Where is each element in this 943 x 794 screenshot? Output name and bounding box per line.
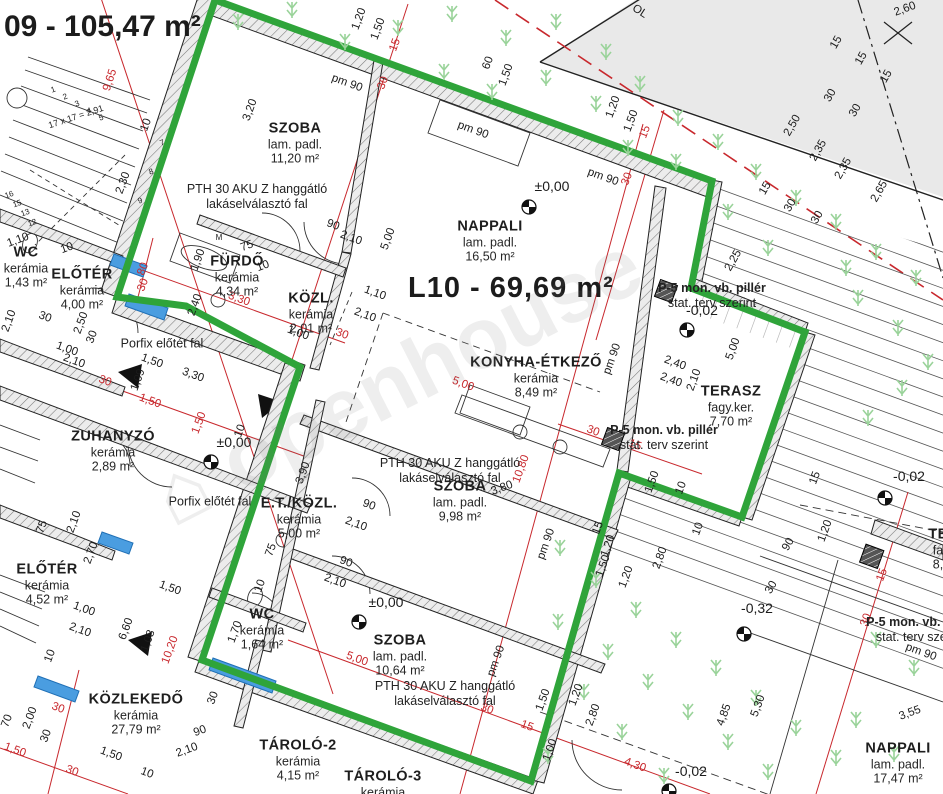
dimension-label: 15	[807, 470, 823, 486]
dimension-label: 2,80	[651, 545, 670, 570]
room-label-terasz-2: TEfa8,	[928, 526, 943, 571]
room-name: KONYHA-ÉTKEZŐ	[470, 354, 602, 371]
dimension-label: 2,10	[352, 306, 377, 325]
dimension-label: 30	[205, 690, 221, 706]
dimension-label: 30	[763, 579, 780, 596]
dimension-label: 1	[50, 84, 58, 94]
grass-icon	[683, 704, 693, 720]
dimension-label: 1,50	[98, 745, 123, 764]
room-label-nappali: NAPPALIlam. padl.16,50 m²	[457, 218, 522, 263]
dimension-label: 1,50	[622, 108, 641, 133]
dimension-label: pm 90	[330, 72, 364, 94]
room-label-kozlekedo: KÖZLEKEDŐkerámia27,79 m²	[89, 691, 184, 736]
grass-icon	[671, 632, 681, 648]
outside-plot-area	[540, 0, 943, 197]
room-name: TÁROLÓ-3	[344, 768, 421, 785]
room-floor-type: kerámia	[51, 283, 112, 297]
grass-icon	[617, 724, 627, 740]
grass-icon	[631, 602, 641, 618]
grass-icon	[643, 674, 653, 690]
room-label-nappali-2: NAPPALIlam. padl.17,47 m²	[865, 740, 930, 785]
dimension-label: 3	[74, 98, 82, 108]
level-marker-icon	[662, 784, 676, 794]
dimension-label: 2,00	[21, 705, 40, 730]
level-value: -0,02	[893, 468, 925, 484]
dimension-label: 2,10	[174, 741, 199, 760]
room-floor-type: kerámia	[259, 754, 336, 768]
room-label-tarolo-2: TÁROLÓ-2kerámia4,15 m²	[259, 737, 336, 782]
room-floor-type: kerámia	[261, 512, 338, 526]
note-pth-3: PTH 30 AKU Z hanggátlólakáselválasztó fa…	[375, 679, 515, 709]
dimension-label: 1,20	[816, 518, 835, 543]
room-floor-type: kerámia	[344, 785, 421, 794]
dimension-label: 30	[64, 763, 80, 779]
room-floor-type: lam. padl.	[457, 235, 522, 249]
dimension-label: 2,40	[662, 354, 687, 373]
dimension-label: 2,80	[584, 702, 603, 727]
dimension-label: 15	[874, 567, 890, 583]
dimension-label: 4,85	[715, 702, 734, 727]
grass-icon	[551, 14, 561, 30]
room-floor-type: kerámia	[288, 307, 334, 321]
room-name: ZUHANYZÓ	[71, 428, 155, 445]
dimension-label: 10	[42, 648, 58, 664]
grass-icon	[791, 720, 801, 736]
dimension-label: 2,40	[658, 371, 683, 390]
room-name: WC	[4, 244, 48, 261]
room-floor-type: lam. padl.	[268, 137, 322, 151]
note-line: Porfix előtét fal	[169, 495, 252, 510]
dimension-label: 1,50	[2, 741, 27, 760]
note-line: stat. terv szerint	[610, 438, 718, 453]
note-line: Porfix előtét fal	[121, 337, 204, 352]
dimension-label: 5,00	[379, 226, 398, 251]
level-marker-icon	[878, 491, 892, 505]
grass-icon	[591, 96, 601, 112]
dimension-label: 2,65	[869, 179, 891, 204]
room-area: 17,47 m²	[865, 771, 930, 785]
room-name: ELŐTÉR	[16, 561, 77, 578]
room-name: FÜRDŐ	[210, 253, 264, 270]
dimension-label: 10	[138, 117, 154, 133]
grass-icon	[831, 750, 841, 766]
dimension-label: 3,55	[897, 704, 922, 723]
room-floor-type: lam. padl.	[433, 495, 487, 509]
level-marker-icon	[204, 455, 218, 469]
grass-icon	[909, 660, 919, 676]
room-area: 1,64 m²	[240, 637, 284, 651]
note-line: P-5 mon. vb. pillér	[610, 423, 718, 438]
dimension-label: 10	[252, 578, 268, 594]
dimension-label: 5,00	[344, 650, 369, 669]
room-area: 4,00 m²	[51, 297, 112, 311]
room-area: 1,43 m²	[4, 275, 48, 289]
dimension-label: 1,20	[604, 94, 623, 119]
dimension-label: 10	[139, 765, 155, 781]
grass-icon	[723, 734, 733, 750]
dimension-label: 2,30	[114, 170, 133, 195]
room-label-wc-1: WCkerámia1,43 m²	[4, 244, 48, 289]
grass-icon	[841, 260, 851, 276]
room-area: 27,79 m²	[89, 722, 184, 736]
dimension-label: 30	[38, 728, 54, 744]
grass-icon	[501, 30, 511, 46]
dimension-label: 2,10	[65, 509, 84, 534]
dimension-label: 30	[619, 171, 635, 187]
dimension-label: 15	[11, 198, 23, 210]
dimension-label: 60	[480, 55, 496, 71]
room-label-konyha-etkezo: KONYHA-ÉTKEZŐkerámia8,49 m²	[470, 354, 602, 399]
room-area: 9,98 m²	[433, 509, 487, 523]
dimension-label: 90	[780, 536, 797, 553]
room-floor-type: kerámia	[89, 708, 184, 722]
dimension-label: 1,50	[369, 16, 388, 41]
dimension-label: 1,50	[190, 410, 209, 435]
room-label-terasz: TERASZfagy.ker.7,70 m²	[701, 383, 761, 428]
note-line: PTH 30 AKU Z hanggátló	[380, 456, 520, 471]
room-label-furdo: FÜRDŐkerámia4,34 m²	[210, 253, 264, 298]
dimension-label: pm 90	[485, 644, 507, 678]
room-name: TERASZ	[701, 383, 761, 400]
room-name: ELŐTÉR	[51, 266, 112, 283]
grass-icon	[763, 764, 773, 780]
grass-icon	[553, 614, 563, 630]
room-area: 4,15 m²	[259, 768, 336, 782]
dimension-label: 2,10	[67, 621, 92, 640]
level-marker-icon	[737, 627, 751, 641]
room-area: 4,34 m²	[210, 284, 264, 298]
level-value: -0,32	[741, 600, 773, 616]
level-marker-icon	[680, 323, 694, 337]
room-label-wc-2: WCkerámia1,64 m²	[240, 606, 284, 651]
room-floor-type: fagy.ker.	[701, 400, 761, 414]
dimension-label: pm 90	[586, 166, 620, 188]
room-label-szoba-3: SZOBAlam. padl.10,64 m²	[373, 632, 427, 677]
dimension-label: pm 90	[456, 119, 490, 141]
note-line: PTH 30 AKU Z hanggátló	[375, 679, 515, 694]
grass-icon	[673, 110, 683, 126]
grass-icon	[851, 712, 861, 728]
room-label-szoba-1: SZOBAlam. padl.11,20 m²	[268, 120, 322, 165]
dimension-label: 2	[62, 91, 70, 101]
note-line: stat. terv szerint	[866, 630, 943, 645]
room-label-zuhanyzo: ZUHANYZÓkerámia2,89 m²	[71, 428, 155, 473]
dimension-label: 30	[135, 277, 151, 293]
room-area: 11,20 m²	[268, 151, 322, 165]
dimension-label: 1,50	[137, 392, 162, 411]
room-floor-type: fa	[928, 543, 943, 557]
room-floor-type: lam. padl.	[865, 757, 930, 771]
dimension-label: 30	[585, 423, 601, 439]
dimension-label: 1,20	[617, 564, 636, 589]
note-line: lakáselválasztó fal	[375, 694, 515, 709]
room-area: 2,89 m²	[71, 459, 155, 473]
room-name: SZOBA	[268, 120, 322, 137]
dimension-label: 1,08	[139, 628, 158, 653]
grass-icon	[447, 6, 457, 22]
level-value: ±0,00	[535, 178, 570, 194]
grass-icon	[893, 320, 903, 336]
room-label-tarolo-3: TÁROLÓ-3kerámia	[344, 768, 421, 794]
dimension-label: pm 90	[601, 342, 623, 376]
adjacent-unit-title: 09 - 105,47 m²	[4, 10, 201, 44]
dimension-label: 16	[3, 189, 15, 201]
room-area: 4,52 m²	[16, 592, 77, 606]
dimension-label: 90	[192, 723, 208, 739]
room-area: 10,64 m²	[373, 663, 427, 677]
grass-icon	[923, 354, 933, 370]
room-label-eloter-1: ELŐTÉRkerámia4,00 m²	[51, 266, 112, 311]
room-floor-type: kerámia	[470, 371, 602, 385]
dimension-label: 15	[519, 718, 535, 734]
room-area: 8,49 m²	[470, 385, 602, 399]
grass-icon	[853, 290, 863, 306]
level-value: ±0,00	[217, 434, 252, 450]
note-line: lakáselválasztó fal	[187, 197, 327, 212]
room-name: TE	[928, 526, 943, 543]
dimension-label: 1,50	[139, 352, 164, 371]
level-value: ±0,00	[369, 594, 404, 610]
note-p5-3: P-5 mon. vb. pillérstat. terv szerint	[866, 615, 943, 645]
note-line: lakáselválasztó fal	[380, 471, 520, 486]
grass-icon	[711, 660, 721, 676]
grass-icon	[393, 20, 403, 36]
note-porfix-2: Porfix előtét fal	[169, 495, 252, 510]
room-area: 2,01 m²	[288, 321, 334, 335]
dimension-label: M	[216, 233, 223, 242]
dimension-label: 9,65	[101, 68, 119, 93]
room-label-kozl: KÖZL.kerámia2,01 m²	[288, 290, 334, 335]
room-label-et-kozl: E.T./KÖZL.kerámia5,00 m²	[261, 495, 338, 540]
dimension-label: 70	[0, 713, 15, 729]
room-name: KÖZLEKEDŐ	[89, 691, 184, 708]
room-floor-type: kerámia	[71, 445, 155, 459]
dimension-label: 2,10	[343, 515, 368, 534]
dimension-label: 15	[637, 124, 653, 140]
dimension-label: 5,30	[749, 693, 768, 718]
dimension-label: 6,60	[117, 616, 136, 641]
grass-icon	[541, 70, 551, 86]
note-line: PTH 30 AKU Z hanggátló	[187, 182, 327, 197]
note-p5-1: P-5 mon. vb. pillérstat. terv szerint	[658, 281, 766, 311]
note-pth-2: PTH 30 AKU Z hanggátlólakáselválasztó fa…	[380, 456, 520, 486]
dimension-label: 30	[50, 700, 66, 716]
dimension-label: 3,20	[241, 97, 260, 122]
grass-icon	[863, 410, 873, 426]
room-floor-type: kerámia	[16, 578, 77, 592]
room-name: NAPPALI	[457, 218, 522, 235]
unit-area-title: L10 - 69,69 m²	[408, 272, 614, 305]
room-area: 5,00 m²	[261, 526, 338, 540]
note-line: P-5 mon. vb. pillér	[658, 281, 766, 296]
room-floor-type: kerámia	[240, 623, 284, 637]
dimension-label: 1,20	[350, 6, 369, 31]
note-pth-1: PTH 30 AKU Z hanggátlólakáselválasztó fa…	[187, 182, 327, 212]
note-porfix-1: Porfix előtét fal	[121, 337, 204, 352]
dimension-label: 1,50	[497, 62, 516, 87]
dimension-label: 4,30	[622, 756, 647, 775]
room-area: 16,50 m²	[457, 249, 522, 263]
grass-icon	[603, 644, 613, 660]
grass-icon	[555, 540, 565, 556]
dimension-label: 90	[325, 217, 341, 233]
room-area: 8,	[928, 557, 943, 571]
room-name: SZOBA	[373, 632, 427, 649]
note-line: stat. terv szerint	[658, 296, 766, 311]
room-name: KÖZL.	[288, 290, 334, 307]
room-name: E.T./KÖZL.	[261, 495, 338, 512]
room-floor-type: kerámia	[210, 270, 264, 284]
dimension-label: 13	[19, 207, 31, 219]
floorplan-canvas: 9,651,201,50pm 901530601,50pm 901,201,50…	[0, 0, 943, 794]
note-line: P-5 mon. vb. pillér	[866, 615, 943, 630]
dimension-label: 1,50	[157, 579, 182, 598]
room-floor-type: kerámia	[4, 261, 48, 275]
note-p5-2: P-5 mon. vb. pillérstat. terv szerint	[610, 423, 718, 453]
grass-icon	[439, 64, 449, 80]
grass-icon	[287, 2, 297, 18]
room-floor-type: lam. padl.	[373, 649, 427, 663]
grass-icon	[897, 380, 907, 396]
dimension-label: pm 90	[535, 527, 557, 561]
room-name: NAPPALI	[865, 740, 930, 757]
dimension-label: 15	[757, 180, 774, 197]
level-marker-icon	[522, 200, 536, 214]
level-marker-icon	[352, 615, 366, 629]
dimension-label: 1,10	[362, 284, 387, 303]
dimension-label: 90	[361, 497, 377, 513]
dimension-label: 3,30	[180, 366, 205, 385]
dimension-label: 2,10	[0, 308, 19, 333]
room-name: WC	[240, 606, 284, 623]
dimension-label: 5,00	[724, 336, 743, 361]
grass-icon	[763, 240, 773, 256]
room-name: TÁROLÓ-2	[259, 737, 336, 754]
dimension-label: 15	[387, 37, 403, 53]
dimension-label: 10,20	[160, 634, 181, 665]
dimension-label: 30	[84, 329, 100, 345]
grass-icon	[723, 204, 733, 220]
dimension-label: 75	[263, 542, 279, 558]
level-value: -0,02	[675, 763, 707, 779]
grass-icon	[831, 214, 841, 230]
room-label-eloter-2: ELŐTÉRkerámia4,52 m²	[16, 561, 77, 606]
